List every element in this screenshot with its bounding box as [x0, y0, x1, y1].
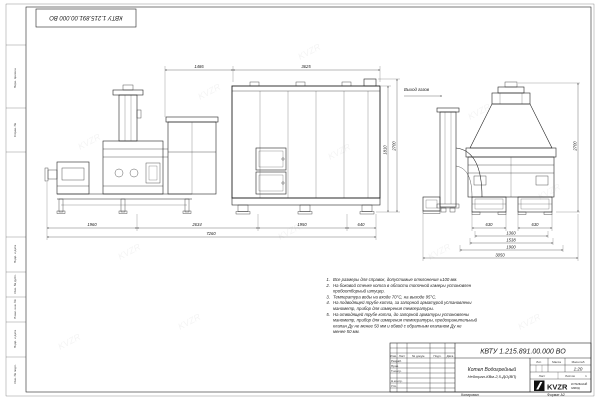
dim-end-630-left: 630: [486, 222, 494, 227]
note-line: На боковой стенке котла в области топочн…: [333, 283, 472, 288]
watermark-text: KVZR: [426, 241, 452, 261]
engineering-drawing-sheet: KVZR KVZR KVZR KVZR KVZR KVZR KVZR KVZR …: [0, 0, 600, 400]
note-line: На подводящей трубе котла, за запорной а…: [333, 300, 472, 305]
tb-scale-label: Масштаб: [572, 360, 585, 364]
tb-header-list: Лист: [399, 354, 406, 358]
tb-mass-label: Масса: [552, 360, 561, 364]
economizer-tower: [163, 117, 218, 194]
tb-doc-number: КВТУ 1.215.891.00.000 ВО: [480, 349, 566, 356]
base-channel: [232, 198, 380, 205]
dim-end-1900: 1900: [506, 245, 516, 250]
note-number: 5.: [326, 312, 330, 317]
note-line: На отводящей трубе котла, до запорной ар…: [333, 312, 470, 317]
note-line: Температура воды на входе 70°С, на выход…: [333, 294, 436, 299]
note-number: 3.: [326, 294, 330, 299]
dim-chain-3: 1950: [297, 222, 307, 227]
tb-name-line2: Нейтрал-КВм-2,5-ДО(ВП): [468, 374, 517, 379]
tb-role: Т.контр.: [391, 369, 402, 373]
tb-header-doc: № докум.: [412, 354, 425, 358]
watermark-text: KVZR: [116, 241, 142, 261]
tb-sheets-value: 1: [585, 374, 587, 378]
kvzr-logo: KVZR КОТЕЛЬНЫЙ ЗАВОД: [534, 381, 587, 392]
watermark-text: KVZR: [196, 81, 222, 101]
hopper-right: [518, 197, 552, 212]
tb-scale-value: 1:20: [574, 366, 583, 371]
gauge-circle: [130, 169, 138, 177]
tb-sheet-label: Лист: [539, 374, 546, 378]
dim-height-inner: 1810: [383, 145, 388, 155]
hopper-left: [472, 197, 506, 212]
vessel-body: [466, 82, 556, 197]
dim-chain-4: 640: [358, 222, 366, 227]
dim-chain-2: 2634: [191, 222, 202, 227]
format-label: Формат А2: [547, 393, 565, 397]
top-stamp: КВТУ 1.215.891.00.000 ВО: [36, 9, 136, 27]
tb-header-data: Дата: [447, 354, 454, 358]
elbow-outer: [456, 148, 482, 197]
tb-lit-label: Лит.: [536, 360, 542, 364]
technical-notes: 1. Все размеры для справок, допустимые о…: [325, 277, 477, 334]
margin-label: Перв. примен.: [13, 68, 17, 89]
tb-role: Утв.: [391, 384, 397, 388]
note-number: 4.: [326, 300, 330, 305]
note-line: манометр, прибор для измерения температу…: [333, 306, 434, 311]
kvzr-logo-sub2: ЗАВОД: [571, 386, 580, 390]
watermark-text: KVZR: [536, 181, 562, 201]
watermark-text: KVZR: [56, 331, 82, 351]
top-stamp-number: КВТУ 1.215.891.00.000 ВО: [49, 14, 123, 20]
note-line: Все размеры для справок, допустимые откл…: [333, 277, 458, 282]
dim-end-1360: 1360: [506, 231, 516, 236]
boiler-door-lower: [256, 172, 286, 194]
dim-height-outer: 2700: [392, 141, 397, 152]
copy-label: Копировал: [461, 393, 479, 397]
dim-total-bottom: 7260: [206, 231, 216, 236]
margin-label: Подп. и дата: [13, 245, 17, 264]
margin-label: Справ. №: [13, 122, 17, 137]
margin-label: Инв. № дубл.: [13, 274, 17, 293]
note-line: менее 50 мм.: [333, 329, 360, 334]
watermark-text: KVZR: [326, 141, 352, 161]
note-line: пробоотборный штуцер.: [333, 289, 385, 294]
tb-name-line1: Котел Водогрейный: [468, 366, 517, 373]
margin-label: Взам. инв. №: [13, 299, 17, 319]
boiler-door-upper: [256, 148, 286, 170]
cyclone-furnace: [103, 141, 163, 194]
pedestal-box: [423, 197, 440, 214]
dim-top-right: 3625: [301, 64, 311, 69]
watermark-text: KVZR: [466, 101, 492, 121]
boiler-body: [232, 79, 380, 214]
dim-end-total: 3050: [495, 253, 505, 258]
top-nozzle: [364, 79, 376, 86]
flue-duct: [437, 108, 482, 212]
title-block: Изм. Лист № докум. Подп. Дата Разраб. Пр…: [390, 343, 591, 392]
dim-end-630-right: 630: [532, 222, 540, 227]
tb-role: Пров.: [391, 364, 399, 368]
note-line: клапан Ду не менее 50 мм и обвод с обрат…: [333, 323, 462, 328]
left-margin-cells: Перв. примен. Справ. № Подп. и дата Инв.…: [6, 45, 26, 384]
watermark-text: KVZR: [516, 311, 542, 331]
note-number: 1.: [326, 277, 330, 282]
dim-top-left: 1486: [194, 64, 204, 69]
support-platform: [57, 194, 192, 214]
tb-role: Н.контр.: [391, 379, 403, 383]
dim-end-height: 2700: [573, 141, 578, 152]
chimney-stack: [113, 85, 143, 141]
tb-header-podp: Подп.: [434, 354, 442, 358]
burner-unit: [45, 162, 89, 194]
watermark-text: KVZR: [76, 131, 102, 151]
dim-chain-1: 1960: [87, 222, 97, 227]
watermark-layer: KVZR KVZR KVZR KVZR KVZR KVZR KVZR KVZR …: [56, 41, 562, 351]
top-stub: [505, 82, 517, 87]
dim-end-1538: 1538: [506, 238, 516, 243]
note-line: манометр, прибор для измерения температу…: [333, 318, 478, 323]
boiler-side-view: [45, 79, 380, 214]
gas-outlet-callout: Выход газов: [404, 87, 442, 96]
tb-role: Разраб.: [391, 359, 402, 363]
elbow-inner: [456, 166, 472, 197]
gas-outlet-label: Выход газов: [404, 87, 430, 92]
note-number: 2.: [325, 283, 330, 288]
gauge-circle: [115, 169, 123, 177]
watermark-text: KVZR: [296, 41, 322, 61]
kvzr-logo-sub1: КОТЕЛЬНЫЙ: [571, 382, 587, 386]
tb-sheets-label: Листов: [565, 374, 575, 378]
margin-label: Инв. № подл.: [13, 364, 17, 383]
kvzr-logo-text: KVZR: [547, 383, 568, 392]
margin-label: Подп. и дата: [13, 330, 17, 349]
tb-header-izm: Изм.: [390, 354, 397, 358]
watermark-text: KVZR: [176, 311, 202, 331]
